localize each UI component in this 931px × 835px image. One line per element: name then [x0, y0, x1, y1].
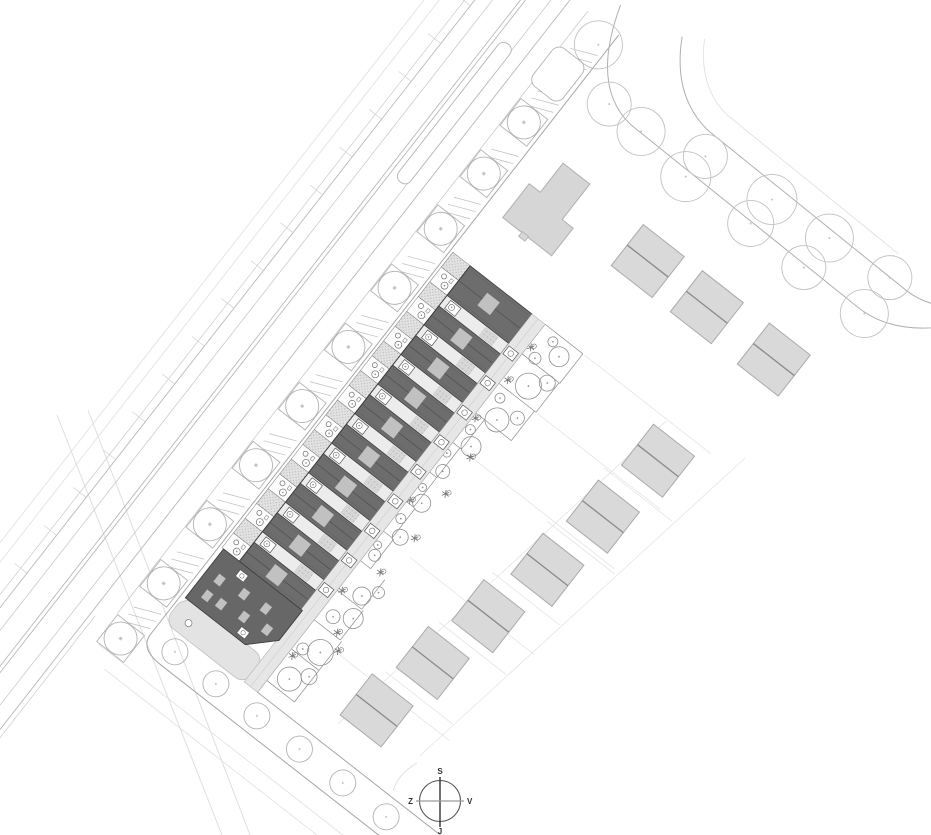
tree-center-dot [361, 595, 364, 598]
tree-center-dot [298, 748, 301, 751]
tree-center-dot [771, 198, 774, 201]
road-tick [458, 0, 471, 6]
existing-building-footprint [503, 155, 601, 256]
tree-center-dot [288, 678, 291, 681]
tree-center-dot [546, 382, 549, 385]
site-plan-svg: S J V Z [0, 0, 931, 835]
tree-center-dot [385, 815, 388, 818]
site-rotated-group [0, 0, 931, 835]
building-outline [528, 43, 587, 104]
tree-center-dot [516, 417, 519, 420]
faint-road-line [393, 763, 417, 791]
road-tick [74, 488, 87, 498]
shrub-icon [375, 566, 387, 578]
tree-center-dot [704, 155, 707, 158]
right-road [526, 0, 931, 389]
garden-side-fence [545, 324, 583, 354]
tree-center-dot [469, 428, 472, 431]
tree-center-dot [255, 714, 258, 717]
road-tick [280, 223, 293, 233]
tree-center-dot [399, 536, 402, 539]
garden-rear-fence [319, 641, 342, 670]
garden-rear-fence [511, 411, 534, 441]
tree-center-dot [499, 397, 502, 400]
road-tick [428, 34, 441, 44]
garden-rear-fence [536, 383, 559, 413]
tree-center-dot [319, 651, 322, 654]
tree-center-dot [558, 355, 561, 358]
shrub-icon [440, 487, 452, 499]
road-edge-line [644, 37, 931, 333]
gabled-house [621, 424, 694, 497]
garden-side-fence [499, 383, 536, 412]
tree-center-dot [373, 554, 376, 557]
garden-side-fence [291, 649, 319, 671]
tree-center-dot [308, 675, 311, 678]
compass-rose: S J V Z [408, 767, 473, 835]
shrub-icon [409, 532, 421, 544]
tree-center-dot [496, 419, 499, 422]
road-tick [14, 563, 27, 573]
road-tick [310, 185, 323, 195]
road-tick [162, 374, 175, 384]
tree-center-dot [420, 502, 423, 505]
road-tick [44, 525, 57, 535]
shrub-icon [465, 451, 477, 463]
tree-center-dot [215, 682, 218, 685]
tree-center-dot [802, 266, 805, 269]
garden-rear-fence [560, 354, 583, 384]
gabled-house [611, 225, 684, 298]
tree-center-dot [332, 615, 335, 618]
tree-center-dot [446, 452, 449, 455]
tree-center-dot [828, 237, 831, 240]
road-tick [192, 336, 205, 346]
garden-rear-fence [294, 670, 319, 702]
tree-center-dot [684, 175, 687, 178]
garden-side-fence [337, 590, 361, 609]
site-plan: S J V Z [0, 0, 931, 835]
shrub-icon [332, 626, 344, 638]
road-tick [221, 298, 234, 308]
tree-center-dot [597, 43, 600, 46]
tree-center-dot [421, 486, 424, 489]
tree-center-dot [174, 650, 177, 653]
tree-center-dot [552, 341, 555, 344]
compass-label-west: Z [408, 797, 413, 806]
road-edge-line [564, 5, 931, 359]
compass-label-east: V [467, 797, 473, 806]
tree-center-dot [608, 103, 611, 106]
faint-road-line [104, 669, 482, 835]
faint-road-line [674, 39, 929, 254]
road-tick [133, 412, 146, 422]
garden-side-fence [453, 442, 462, 449]
plan-root [0, 0, 931, 835]
road-tick [369, 109, 382, 119]
road-tick [340, 147, 353, 157]
compass-label-south: J [438, 827, 442, 835]
tree-center-dot [534, 357, 537, 360]
compass-label-north: S [437, 767, 443, 776]
tree-center-dot [377, 591, 380, 594]
tree-center-dot [400, 517, 403, 520]
gabled-house [670, 271, 743, 344]
tree-center-dot [341, 782, 344, 785]
tree-center-dot [527, 385, 530, 388]
tree-center-dot [470, 445, 473, 448]
tree-center-dot [302, 648, 305, 651]
road-tick [251, 261, 264, 271]
existing-building [500, 155, 601, 260]
gabled-house [452, 580, 525, 653]
garden-side-fence [360, 561, 370, 569]
tree-center-dot [352, 617, 355, 620]
road-tick [399, 72, 412, 82]
gabled-house [566, 480, 639, 553]
garden-side-fence [383, 531, 392, 538]
tree-center-dot [376, 544, 379, 547]
gabled-house [737, 323, 810, 396]
